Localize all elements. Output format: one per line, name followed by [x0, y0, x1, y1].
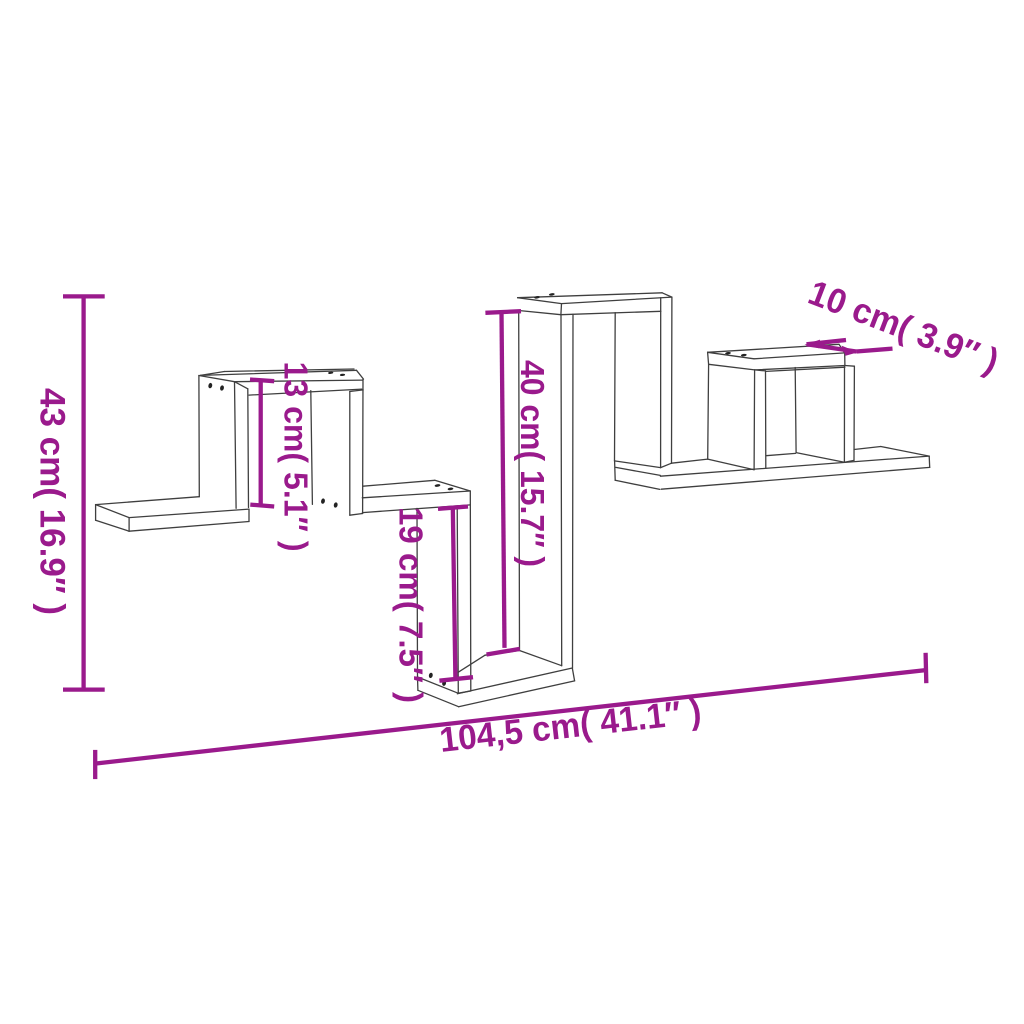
svg-text:40 cm( 15.7″ ): 40 cm( 15.7″ )	[513, 360, 550, 567]
svg-text:13 cm( 5.1″ ): 13 cm( 5.1″ )	[278, 362, 315, 552]
svg-text:43 cm( 16.9″ ): 43 cm( 16.9″ )	[33, 388, 72, 615]
svg-text:19 cm( 7.5″ ): 19 cm( 7.5″ )	[392, 507, 429, 703]
